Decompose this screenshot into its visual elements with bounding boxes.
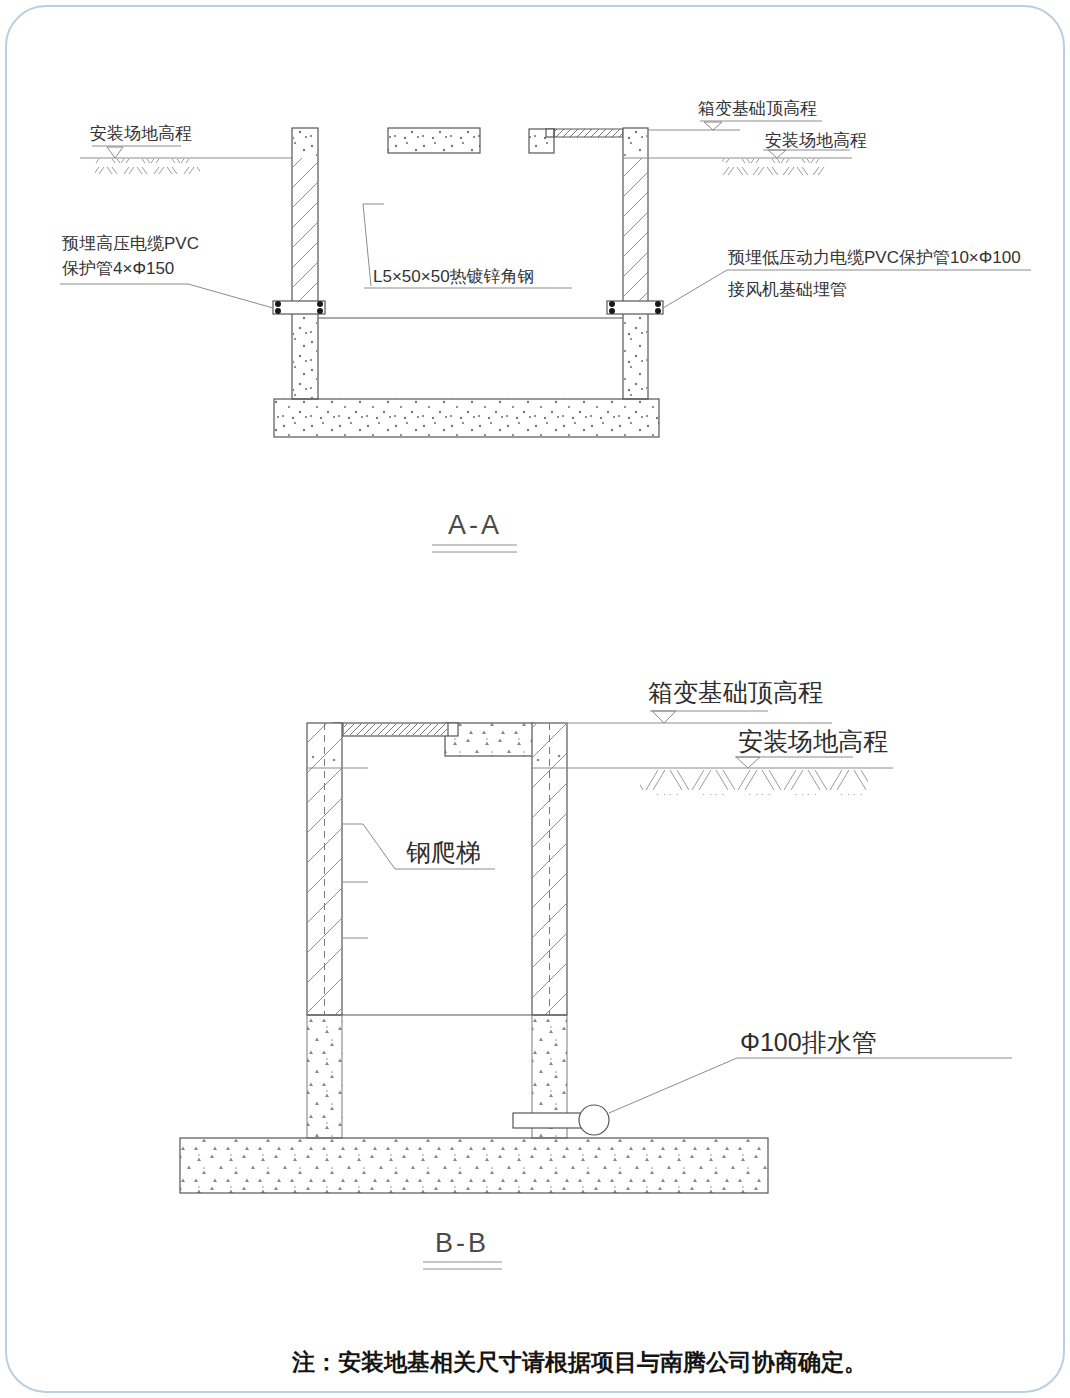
label-hv-conduit-1: 预埋高压电缆PVC: [62, 234, 199, 253]
section-bb: 箱变基础顶高程 安装场地高程 钢爬梯 Φ100排水管 B-B: [180, 678, 1012, 1269]
drawing-note: 注：安装地基相关尺寸请根据项目与南腾公司协商确定。: [291, 1349, 867, 1375]
section-bb-title: B-B: [435, 1228, 489, 1258]
lv-conduit-leader: [663, 270, 1031, 308]
label-lv-conduit-1: 预埋低压动力电缆PVC保护管10×Φ100: [728, 248, 1021, 267]
elevation-marker-icon: [704, 122, 722, 130]
ground-hatch-right: [722, 159, 827, 175]
label-site-elevation-right: 安装场地高程: [765, 131, 867, 150]
label-lv-conduit-2: 接风机基础埋管: [728, 280, 847, 299]
ground-hatch-left: [95, 159, 200, 174]
elevation-marker-icon: [652, 711, 676, 723]
label-site-elevation-bb: 安装场地高程: [738, 727, 888, 755]
right-wall-bb: [532, 723, 567, 1015]
buried-column-left: [307, 1015, 342, 1138]
angle-steel-corner: [546, 129, 554, 137]
base-slab-bb: [180, 1138, 768, 1193]
label-hv-conduit-2: 保护管4×Φ150: [62, 259, 174, 278]
section-aa: 安装场地高程 箱变基础顶高程 安装场地高程: [60, 99, 1031, 552]
section-aa-title: A-A: [448, 510, 502, 540]
elevation-marker-icon: [768, 150, 786, 158]
base-slab-aa: [274, 399, 659, 437]
angle-steel-strip: [554, 129, 623, 137]
lv-pipe-sleeve: [607, 301, 663, 314]
label-foundation-top-aa: 箱变基础顶高程: [698, 99, 817, 118]
hv-conduit-leader: [60, 284, 273, 308]
label-site-elevation-left: 安装场地高程: [90, 124, 192, 143]
ground-hatch-bb: [640, 769, 868, 795]
hv-pipe-sleeve: [273, 301, 325, 314]
top-concrete-block: [388, 128, 480, 153]
cover-slab-bb: [333, 723, 458, 736]
label-angle-steel: L5×50×50热镀锌角钢: [373, 267, 535, 286]
drain-pipe-leader: [609, 1058, 1012, 1113]
elevation-marker-icon: [107, 147, 123, 158]
left-wall-aa: [292, 128, 318, 399]
foundation-section-drawing: 安装场地高程 箱变基础顶高程 安装场地高程: [0, 0, 1070, 1398]
elevation-marker-icon: [736, 757, 760, 768]
label-ladder: 钢爬梯: [406, 838, 481, 866]
left-wall-bb: [307, 723, 342, 1015]
drawing-page: 安装场地高程 箱变基础顶高程 安装场地高程: [0, 0, 1070, 1398]
right-wall-aa: [623, 128, 648, 399]
label-foundation-top-bb: 箱变基础顶高程: [648, 678, 823, 706]
label-drain-pipe: Φ100排水管: [740, 1028, 877, 1056]
